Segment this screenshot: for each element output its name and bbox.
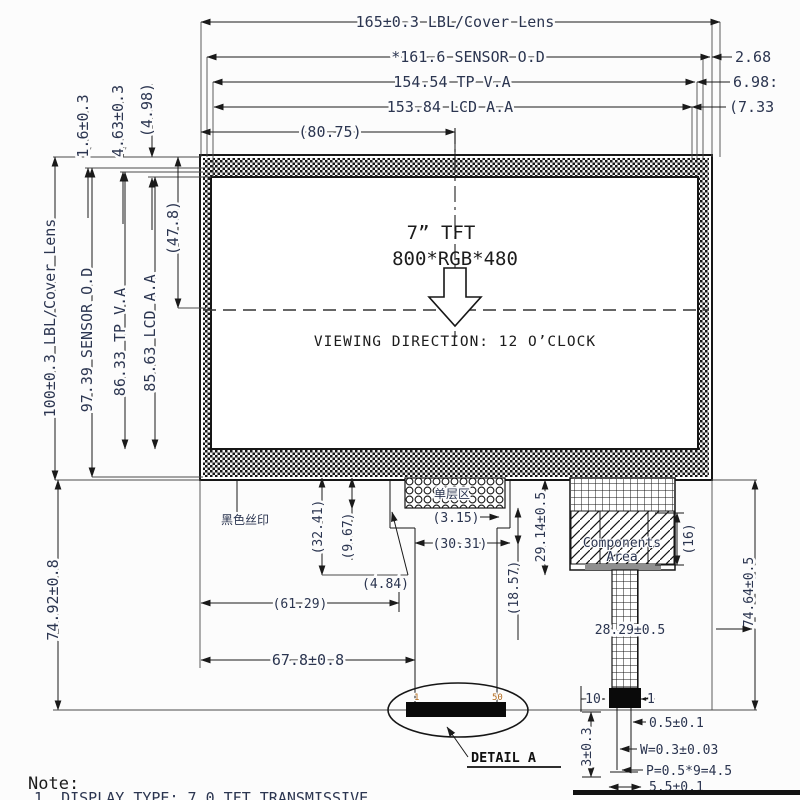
detail-a-label: DETAIL A [471, 750, 536, 766]
connector-dim-c1: 0.5±0.1 [649, 716, 704, 731]
connector-dim-c5: 3±0.3 [580, 727, 595, 766]
dim-b5: (4.84) [362, 577, 409, 592]
connector-dim-c2: W=0.3±0.03 [640, 743, 718, 758]
dim-b6: (61.29) [273, 597, 328, 612]
connector-pin-right-label: 1 [647, 692, 655, 707]
components-label-2: Area [606, 550, 637, 565]
main-fpc-connector [609, 688, 641, 708]
connector-pin-left-label: 10 [585, 692, 601, 707]
detail-pin-last: 50 [492, 693, 503, 703]
dim-right-1: 2.68 [735, 48, 771, 66]
black-silk-label: 黑色丝印 [221, 513, 269, 527]
dim-half-height: (47.8) [164, 201, 182, 255]
connector-dimensions: 10 1 0.5±0.1 W=0.3±0.03 P=0.5*9=4.5 5.5±… [580, 686, 732, 795]
dim-b4: (30.31) [433, 537, 488, 552]
screen-size-label: 7” TFT [407, 222, 476, 244]
components-grid-strip [571, 479, 674, 511]
dim-lcd-height: 85.63 LCD A.A [141, 274, 159, 391]
dim-b1: (32.41) [311, 500, 326, 555]
dimensions-top: 165±0.3 LBL/Cover Lens *161.6 SENSOR O.D… [201, 13, 720, 177]
viewing-direction-label: VIEWING DIRECTION: 12 O’CLOCK [314, 334, 596, 350]
dim-sensor-height: 97.39 SENSOR O.D [78, 268, 96, 413]
dim-right-2: 6.98: [733, 73, 778, 91]
dim-b10: (16) [682, 523, 697, 554]
dim-right-3: (7.33 [729, 98, 774, 116]
dimensions-bottom: 黑色丝印 (32.41) (9.67) (3.15) (30.31) (4.84… [201, 478, 757, 710]
engineering-drawing: 7” TFT 800*RGB*480 VIEWING DIRECTION: 12… [0, 0, 800, 800]
screen-resolution-label: 800*RGB*480 [392, 248, 518, 270]
dim-sensor-width: *161.6 SENSOR O.D [391, 48, 545, 66]
dim-b8: (18.57) [507, 561, 522, 616]
dimensions-left: 1.6±0.3 4.63±0.3 (4.98) 100±0.3 LBL/Cove… [41, 83, 211, 710]
table-border-fragment [573, 790, 800, 795]
connector-dim-c3: P=0.5*9=4.5 [646, 764, 732, 779]
components-label-1: Components [583, 536, 661, 551]
tp-fpc-connector-bar [406, 702, 506, 717]
dim-tp-height: 86.33 TP V.A [111, 288, 129, 396]
dim-half-width: (80.75) [298, 123, 361, 141]
dim-b9: 29.14±0.5 [534, 492, 549, 562]
dim-b2: (9.67) [341, 513, 356, 560]
dim-b7: 67.8±0.8 [272, 651, 344, 669]
dim-left-2: 4.63±0.3 [109, 85, 127, 157]
note-line-1: 1. DISPLAY TYPE: 7.0 TFT TRANSMISSIVE [34, 789, 368, 800]
dim-tp-width: 154.54 TP V.A [393, 73, 510, 91]
detail-pin-first: 1 [414, 693, 419, 703]
dimensions-right: 2.68 6.98: (7.33 [692, 48, 778, 116]
tft-module-drawing: 7” TFT 800*RGB*480 VIEWING DIRECTION: 12… [0, 0, 800, 800]
dim-b3: (3.15) [433, 511, 480, 526]
dim-left-3: (4.98) [138, 83, 156, 137]
dim-cover-height: 100±0.3 LBL/Cover Lens [41, 219, 59, 418]
single-layer-label: 单层区 [434, 487, 470, 501]
dim-cover-width: 165±0.3 LBL/Cover Lens [356, 13, 555, 31]
dim-b12: 28.29±0.5 [595, 623, 665, 638]
dim-b11: 74.64±0.5 [742, 557, 757, 627]
dim-left-1: 1.6±0.3 [74, 94, 92, 157]
dim-lower-height: 74.92±0.8 [44, 559, 62, 640]
dim-lcd-width: 153.84 LCD A.A [387, 98, 513, 116]
